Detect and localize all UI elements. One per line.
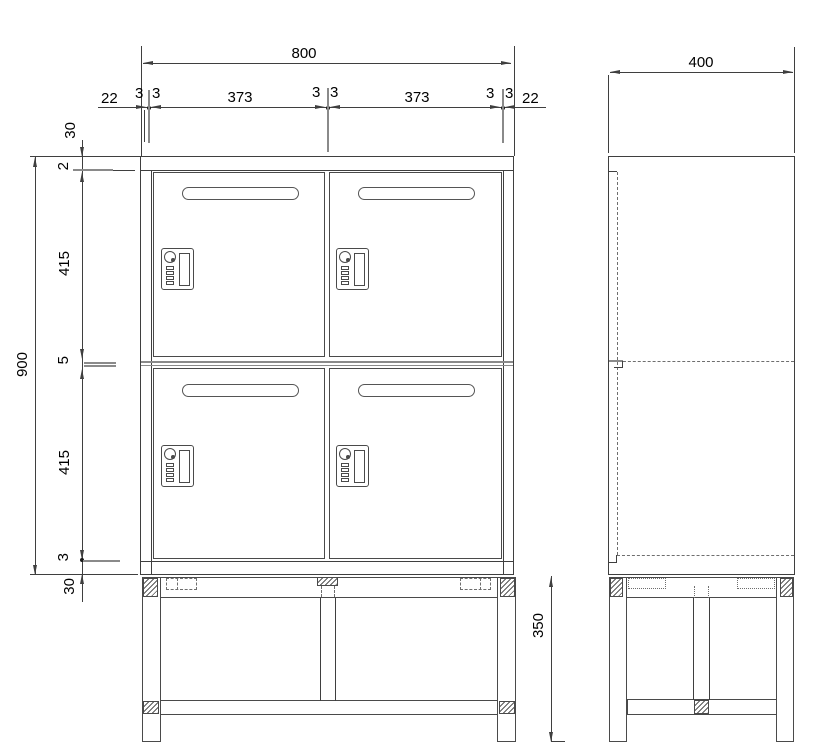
stand-right-leg	[497, 577, 516, 742]
arrowhead	[80, 349, 84, 359]
lock-dial-icon	[339, 251, 351, 263]
lock-dial-center	[346, 258, 350, 262]
lock-keypad	[179, 253, 190, 286]
lock-button	[341, 478, 349, 482]
section-hatch	[317, 577, 338, 586]
combination-lock	[161, 248, 194, 290]
dim-top-panel: 30	[63, 122, 79, 139]
section-hatch	[143, 578, 158, 597]
bottom-hidden-line	[617, 555, 794, 556]
door-edge-extension	[148, 90, 150, 143]
dim-door-width-left: 373	[219, 89, 261, 106]
mail-slot	[182, 187, 299, 200]
hidden-line	[708, 586, 709, 598]
lock-keypad	[354, 253, 365, 286]
dim-middle-gap: 5	[56, 356, 72, 364]
left-panel-line	[151, 171, 152, 574]
bottom-panel-line	[141, 561, 513, 562]
hidden-line	[177, 578, 178, 590]
door-bottom-detail	[609, 555, 617, 563]
dim-overall-width: 800	[283, 45, 325, 62]
lock-keypad	[179, 450, 190, 483]
top-panel-line	[141, 170, 513, 171]
extension-line	[30, 156, 140, 157]
dim-stand-height: 350	[531, 613, 547, 638]
gap-extension	[84, 365, 116, 367]
gap-extension	[73, 169, 113, 171]
dim-overall-height: 900	[15, 352, 31, 377]
hidden-line	[321, 586, 322, 597]
extension-line	[794, 47, 795, 153]
door-top-edge	[609, 171, 617, 172]
right-panel-line	[503, 171, 504, 574]
dimension-line	[35, 157, 36, 575]
dim-3: 3	[152, 85, 160, 102]
lock-button	[341, 463, 349, 467]
arrowhead	[610, 70, 620, 74]
lock-button	[341, 473, 349, 477]
extension-line	[514, 46, 515, 156]
drawing-canvas: 800 22 3 3 373 3 3 373 3 3 22	[0, 0, 837, 752]
arrowhead	[549, 577, 553, 587]
dim-22-left: 22	[101, 90, 118, 107]
extension-line	[551, 741, 565, 742]
dimension-line	[551, 576, 552, 742]
gap-extension	[83, 560, 120, 562]
lock-dial-icon	[164, 251, 176, 263]
shelf-hidden-line	[618, 361, 794, 362]
arrowhead	[80, 369, 84, 379]
lock-button	[166, 281, 174, 285]
extension-line	[30, 574, 138, 575]
door-edge-extension	[502, 89, 504, 143]
stand-bottom-rail	[142, 700, 516, 715]
shelf-edge-detail	[614, 367, 623, 368]
hidden-line	[480, 578, 481, 590]
door-hidden-edge	[617, 172, 618, 555]
dim-3: 3	[312, 84, 320, 101]
dim-door-width-right: 373	[396, 89, 438, 106]
middle-shelf-line	[141, 361, 513, 363]
lock-dial-icon	[164, 448, 176, 460]
lock-button	[341, 266, 349, 270]
lock-dial-icon	[339, 448, 351, 460]
arrowhead	[80, 172, 84, 182]
locker-door-upper-right	[329, 172, 502, 357]
lock-dial-center	[171, 455, 175, 459]
lock-button	[341, 276, 349, 280]
section-hatch	[500, 578, 515, 597]
stand-center-post-line	[320, 598, 321, 701]
dim-3: 3	[505, 85, 513, 102]
hidden-bracket	[628, 578, 666, 589]
dim-3: 3	[486, 85, 494, 102]
section-hatch	[694, 700, 709, 714]
combination-lock	[336, 248, 369, 290]
mail-slot	[358, 384, 475, 397]
locker-door-lower-right	[329, 368, 502, 559]
locker-door-upper-left	[153, 172, 325, 357]
lock-button	[166, 468, 174, 472]
dim-3: 3	[135, 85, 143, 102]
dim-bottom-gap: 3	[56, 553, 72, 561]
arrowhead	[783, 70, 793, 74]
section-hatch	[610, 578, 623, 597]
middle-shelf-line	[141, 365, 513, 367]
arrowhead	[80, 574, 84, 584]
locker-door-lower-left	[153, 368, 325, 559]
arrowhead	[501, 61, 511, 65]
extension-line	[608, 75, 609, 153]
lock-button	[341, 281, 349, 285]
arrowhead	[33, 565, 37, 575]
hidden-line	[694, 586, 695, 598]
dim-lower-door-height: 415	[57, 450, 73, 475]
hidden-bracket	[737, 578, 775, 589]
lock-button	[166, 276, 174, 280]
mail-slot	[182, 384, 299, 397]
section-hatch	[499, 701, 515, 714]
dim-bottom-panel: 30	[62, 578, 78, 595]
stand-front-leg	[609, 577, 627, 742]
arrowhead	[315, 105, 325, 109]
stand-center-post-line	[693, 598, 694, 700]
shelf-edge-detail	[609, 360, 623, 362]
dim-22-right: 22	[522, 90, 539, 107]
lock-keypad	[354, 450, 365, 483]
extension-line	[113, 170, 135, 171]
dimension-line	[143, 63, 511, 64]
cabinet-side-outline	[608, 156, 795, 575]
dimension-line	[610, 72, 793, 73]
lock-button	[341, 468, 349, 472]
arrowhead	[151, 105, 161, 109]
section-hatch	[780, 578, 793, 597]
dim-overall-depth: 400	[680, 54, 722, 71]
hidden-bracket	[460, 578, 491, 590]
arrowhead	[330, 105, 340, 109]
dim-top-gap: 2	[56, 162, 72, 170]
door-edge-extension	[327, 88, 329, 152]
stand-center-post-line	[335, 598, 336, 701]
combination-lock	[161, 445, 194, 487]
lock-button	[166, 463, 174, 467]
lock-button	[166, 478, 174, 482]
lock-dial-center	[171, 258, 175, 262]
dim-upper-door-height: 415	[57, 251, 73, 276]
arrowhead	[80, 147, 84, 157]
lock-dial-center	[346, 455, 350, 459]
combination-lock	[336, 445, 369, 487]
gap-extension	[84, 362, 116, 364]
arrowhead	[505, 105, 515, 109]
arrowhead	[490, 105, 500, 109]
lock-button	[341, 271, 349, 275]
section-hatch	[143, 701, 159, 714]
lock-button	[166, 473, 174, 477]
hidden-bracket	[166, 578, 197, 590]
stand-rear-leg	[776, 577, 794, 742]
extension-line	[144, 110, 145, 142]
stand-center-post-line	[709, 598, 710, 700]
lock-button	[166, 266, 174, 270]
arrowhead	[136, 105, 146, 109]
hidden-line	[334, 586, 335, 597]
lock-button	[166, 271, 174, 275]
dim-3: 3	[330, 84, 338, 101]
arrowhead	[33, 157, 37, 167]
mail-slot	[358, 187, 475, 200]
stand-left-leg	[142, 577, 161, 742]
arrowhead	[143, 61, 153, 65]
